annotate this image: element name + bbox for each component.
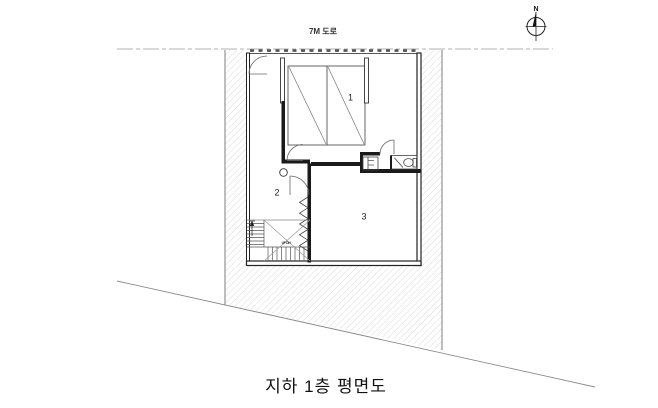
north-compass-icon: N	[526, 6, 547, 41]
room-label-2: 2	[274, 188, 279, 198]
building-outline	[247, 53, 422, 266]
room-label-1: 1	[348, 93, 353, 103]
column-circle	[280, 169, 288, 177]
door-bathroom	[380, 140, 394, 154]
door-entry-top-left	[249, 56, 267, 74]
wall-room3-top	[311, 162, 362, 166]
washbasin-counter	[363, 157, 378, 170]
door-swing-arc	[287, 145, 303, 161]
skylight-frame	[288, 66, 365, 145]
site-hatch	[225, 50, 442, 350]
toilet-icon	[395, 158, 417, 168]
window-mullion-right	[365, 58, 369, 103]
partition-zigzag	[300, 197, 309, 251]
bathroom	[363, 156, 417, 171]
toilet-bowl	[404, 159, 414, 167]
stair-direction-note: UP DN	[282, 241, 292, 245]
door-swing-arc	[290, 176, 309, 195]
skylight-grid	[281, 58, 369, 145]
door-swing-arc	[249, 56, 267, 74]
stair: UP DN	[247, 220, 310, 261]
door-room2	[290, 176, 309, 195]
wall-left	[247, 53, 250, 266]
compass-needle	[533, 12, 536, 27]
door-swing-arc	[380, 140, 394, 154]
doors	[249, 56, 394, 195]
wall-right	[417, 53, 421, 266]
wall-room2-room3	[308, 164, 312, 263]
wall-bottom	[247, 261, 422, 266]
floor-plan-canvas: 7M 도로 N	[0, 0, 658, 408]
road-label: 7M 도로	[309, 27, 338, 36]
wall-bath-top-stub	[363, 152, 380, 156]
door-room1-room2	[287, 145, 303, 161]
floorplan-page: 7M 도로 N	[0, 0, 658, 408]
window-mullion-left	[281, 58, 285, 103]
plan-title: 지하 1층 평면도	[265, 377, 387, 396]
toilet-door-line	[395, 158, 404, 168]
skylight-diagonal-left	[289, 67, 326, 144]
interior-walls	[282, 101, 422, 263]
room-label-3: 3	[361, 212, 366, 222]
wall-room1-left	[282, 101, 286, 162]
skylight-diagonal-right	[328, 67, 364, 144]
